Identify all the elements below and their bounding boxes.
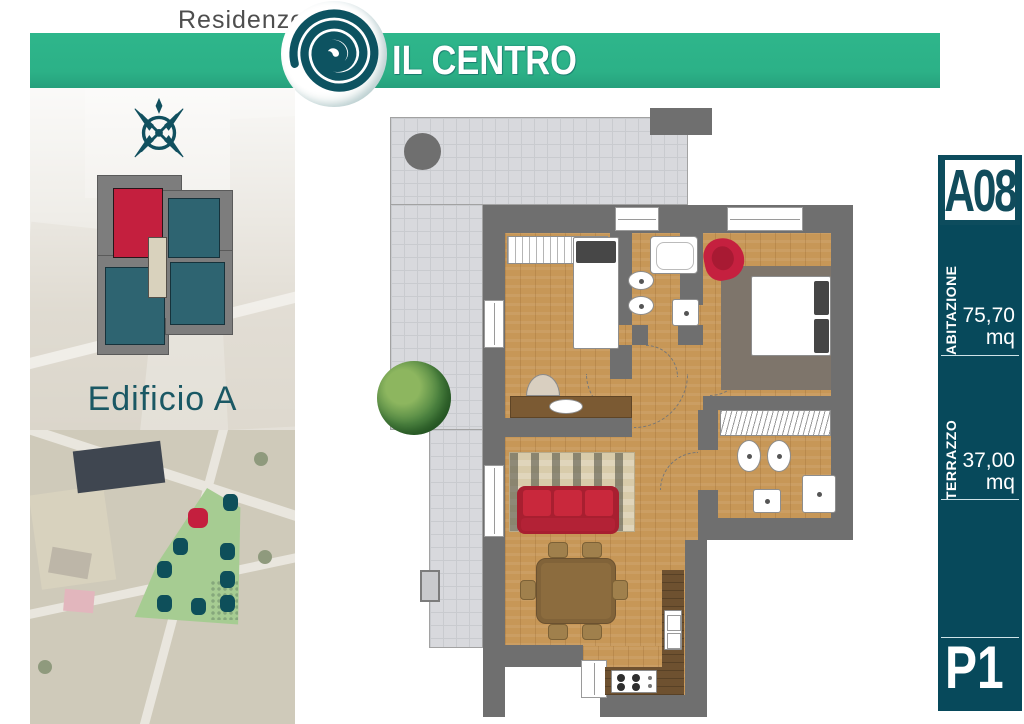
drain xyxy=(777,454,782,459)
wall xyxy=(632,325,648,345)
wall xyxy=(698,410,718,450)
burner xyxy=(632,683,640,691)
closet xyxy=(720,410,831,436)
unit-code-box: A08 xyxy=(940,155,1020,225)
site-building-red-highlight xyxy=(188,508,208,528)
section-label-terrazzo: TERRAZZO xyxy=(943,415,959,500)
burner xyxy=(617,674,625,682)
sofa-cushion xyxy=(523,490,551,516)
section-label-abitazione: ABITAZIONE xyxy=(943,255,959,355)
shower xyxy=(802,475,836,513)
building-block-teal xyxy=(168,198,220,258)
round-table xyxy=(404,133,441,170)
map-pink-building xyxy=(63,589,95,614)
spiral-logo-icon xyxy=(281,1,387,107)
site-building-teal xyxy=(157,561,172,578)
map-tree xyxy=(38,660,52,674)
bathtub xyxy=(650,236,698,274)
burner xyxy=(632,674,640,682)
unit-code: A08 xyxy=(944,156,1015,225)
building-label: Edificio A xyxy=(30,380,295,419)
dining-chair xyxy=(582,542,602,558)
site-building-teal xyxy=(173,538,188,555)
drain xyxy=(684,311,689,316)
tree xyxy=(377,361,451,435)
pillow xyxy=(576,241,616,263)
brand-name: IL CENTRO xyxy=(392,40,577,81)
site-building-teal xyxy=(220,595,235,612)
washbasin xyxy=(753,489,781,513)
wall xyxy=(685,540,707,717)
dining-chair xyxy=(548,624,568,640)
compass-rose-icon xyxy=(130,98,188,162)
aerial-photo-lower xyxy=(30,430,295,724)
drain xyxy=(639,279,644,284)
single-bed xyxy=(573,237,619,349)
stove-knob xyxy=(648,684,652,688)
drain xyxy=(747,454,752,459)
pillow xyxy=(814,281,829,315)
map-tree xyxy=(258,550,272,564)
armchair-cushion xyxy=(710,244,737,272)
sofa-cushion xyxy=(585,490,613,516)
terrazzo-area: 37,00 mq xyxy=(962,450,1015,494)
kitchen-sink xyxy=(664,610,682,650)
unit-info-panel: A08 ABITAZIONE 75,70 mq TERRAZZO 37,00 m… xyxy=(938,155,1022,711)
area-unit: mq xyxy=(962,327,1015,349)
wall xyxy=(698,518,853,540)
bidet xyxy=(628,296,654,315)
site-building-teal xyxy=(220,571,235,588)
site-building-teal xyxy=(223,494,238,511)
wall xyxy=(698,490,718,518)
sink xyxy=(628,271,654,290)
wall xyxy=(505,418,632,437)
window xyxy=(615,207,659,231)
bidet xyxy=(767,440,791,472)
location-panel: Edificio A xyxy=(30,88,295,724)
sink xyxy=(737,440,761,472)
stove xyxy=(611,670,657,693)
bathtub-basin xyxy=(656,242,694,270)
brochure-page: Residenze IL CENTRO xyxy=(0,0,1024,724)
site-building-teal xyxy=(157,595,172,612)
wall xyxy=(600,695,707,717)
site-building-teal xyxy=(191,598,206,615)
wall xyxy=(703,396,833,410)
sink-bowl xyxy=(667,633,681,649)
dining-table xyxy=(536,558,616,624)
courtyard-block xyxy=(148,237,167,298)
desk-bowl xyxy=(549,399,583,414)
area-unit: mq xyxy=(962,472,1015,494)
aerial-photo-upper: Edificio A xyxy=(30,88,295,430)
sofa xyxy=(517,486,619,534)
divider xyxy=(941,499,1019,500)
drain xyxy=(639,304,644,309)
map-tree xyxy=(254,452,268,466)
stove-knob xyxy=(648,676,652,680)
double-bed xyxy=(751,276,831,356)
abitazione-area: 75,70 mq xyxy=(962,305,1015,349)
area-value: 37,00 xyxy=(962,450,1015,472)
wall xyxy=(483,645,583,667)
sink-bowl xyxy=(667,615,681,631)
dining-chair xyxy=(548,542,568,558)
planter xyxy=(420,570,440,602)
site-building-teal xyxy=(220,543,235,560)
floor-label: P1 xyxy=(945,639,1004,696)
divider xyxy=(941,355,1019,356)
dining-chair xyxy=(520,580,536,600)
terrace xyxy=(429,429,483,648)
dining-chair xyxy=(582,624,602,640)
area-value: 75,70 xyxy=(962,305,1015,327)
building-block-teal xyxy=(170,262,225,325)
window xyxy=(484,300,504,348)
burner xyxy=(617,683,625,691)
pillow xyxy=(814,319,829,353)
dining-chair xyxy=(612,580,628,600)
drain xyxy=(765,499,770,504)
window xyxy=(727,207,803,231)
sofa-cushion xyxy=(554,490,582,516)
entry-door xyxy=(581,660,607,698)
wall xyxy=(650,108,712,135)
washbasin xyxy=(672,299,699,326)
sofa-back xyxy=(521,518,615,531)
wall xyxy=(678,325,703,345)
drain xyxy=(817,492,822,497)
terrace-door xyxy=(484,465,504,537)
